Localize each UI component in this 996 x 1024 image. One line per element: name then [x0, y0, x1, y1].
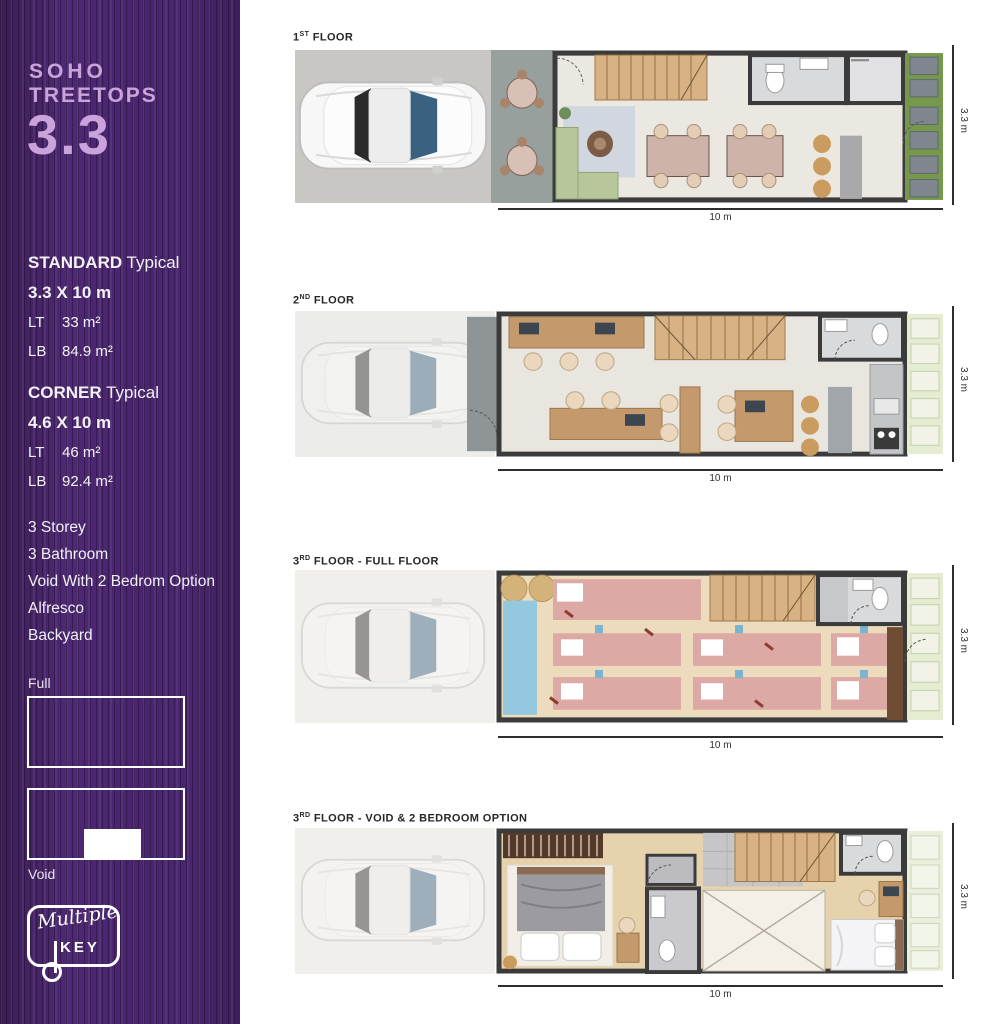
storeroom-1f — [848, 55, 903, 103]
void-label: Void — [28, 866, 55, 882]
dim-line-33m-4 — [952, 823, 954, 979]
void-notch — [84, 829, 141, 858]
feature-item: Alfresco — [28, 595, 215, 622]
floor-plan-3rd-void — [295, 828, 945, 974]
bathroom-2f — [820, 316, 903, 360]
wardrobe-strip — [887, 627, 903, 720]
dim-label-10m-3: 10 m — [498, 740, 943, 751]
standard-dimension: 3.3 X 10 m — [28, 283, 111, 303]
dim-label-33m-2: 3.3 m — [958, 367, 969, 392]
multiple-key-logo: Multiple KEY — [27, 905, 120, 967]
stairs-3f — [710, 575, 815, 621]
side-garden-2f — [907, 314, 943, 454]
floor-plan-2nd — [295, 311, 945, 457]
dim-label-10m-1: 10 m — [498, 212, 943, 223]
dim-label-33m-4: 3.3 m — [958, 884, 969, 909]
standard-lt: LT33 m² — [28, 314, 100, 331]
dim-line-33m-2 — [952, 306, 954, 462]
bean-bag — [529, 575, 555, 602]
floor-plan-1st — [295, 50, 945, 203]
side-garden-4f — [907, 831, 943, 971]
stairs-4f — [735, 833, 835, 882]
corner-lt: LT46 m² — [28, 444, 100, 461]
car-top-view-ghost — [302, 855, 484, 945]
floor-plan-3rd-full — [295, 570, 945, 723]
feature-item: 3 Bathroom — [28, 541, 215, 568]
corner-dimension: 4.6 X 10 m — [28, 413, 111, 433]
side-garden-3f — [905, 573, 943, 720]
car-top-view — [300, 77, 486, 173]
plan2-title: 2ND FLOOR — [293, 294, 354, 307]
dim-label-33m-3: 3.3 m — [958, 628, 969, 653]
void-diagram — [27, 788, 185, 860]
stairs-1f — [595, 55, 707, 100]
brochure-page: SOHO TREETOPS 3.3 STANDARD Typical 3.3 X… — [0, 0, 996, 1024]
dim-line-33m-1 — [952, 45, 954, 205]
feature-item: Void With 2 Bedrom Option — [28, 568, 215, 595]
full-diagram — [27, 696, 185, 768]
key-ring-icon — [42, 962, 62, 982]
sidebar: SOHO TREETOPS 3.3 STANDARD Typical 3.3 X… — [0, 0, 240, 1024]
car-top-view-ghost — [302, 598, 484, 692]
dim-line-10m-4 — [498, 985, 943, 987]
corner-lb: LB92.4 m² — [28, 473, 113, 490]
wardrobe-4f — [503, 833, 603, 858]
stairs-2f — [655, 316, 785, 360]
dim-label-10m-2: 10 m — [498, 473, 943, 484]
backyard-1f — [903, 53, 943, 200]
brand-key-text: KEY — [60, 939, 100, 956]
yoga-mat-blue — [503, 601, 537, 715]
dim-line-10m-1 — [498, 208, 943, 210]
feature-item: 3 Storey — [28, 514, 215, 541]
corner-title: CORNER Typical — [28, 383, 159, 403]
full-label: Full — [28, 675, 51, 691]
plan3-title: 3RD FLOOR - FULL FLOOR — [293, 555, 439, 568]
brand-script-text: Multiple — [33, 900, 122, 934]
logo-soho: SOHO — [29, 60, 107, 84]
bean-bag — [501, 575, 527, 602]
plan1-title: 1ST FLOOR — [293, 31, 353, 44]
dim-line-10m-3 — [498, 736, 943, 738]
bathroom-3f — [818, 575, 903, 624]
dim-label-10m-4: 10 m — [498, 989, 943, 1000]
plan4-title: 3RD FLOOR - VOID & 2 BEDROOM OPTION — [293, 812, 527, 825]
feature-item: Backyard — [28, 622, 215, 649]
standard-title: STANDARD Typical — [28, 253, 179, 273]
dim-line-33m-3 — [952, 565, 954, 725]
bathroom-mid-4f — [647, 855, 699, 972]
bathroom-1f — [750, 55, 846, 103]
dim-line-10m-2 — [498, 469, 943, 471]
bathroom-top-right-4f — [841, 833, 903, 874]
feature-list: 3 Storey 3 Bathroom Void With 2 Bedrom O… — [28, 514, 215, 649]
void-area — [703, 890, 825, 971]
standard-lb: LB84.9 m² — [28, 343, 113, 360]
dim-label-33m-1: 3.3 m — [958, 108, 969, 133]
car-top-view-ghost — [302, 338, 484, 428]
unit-number: 3.3 — [27, 102, 111, 167]
